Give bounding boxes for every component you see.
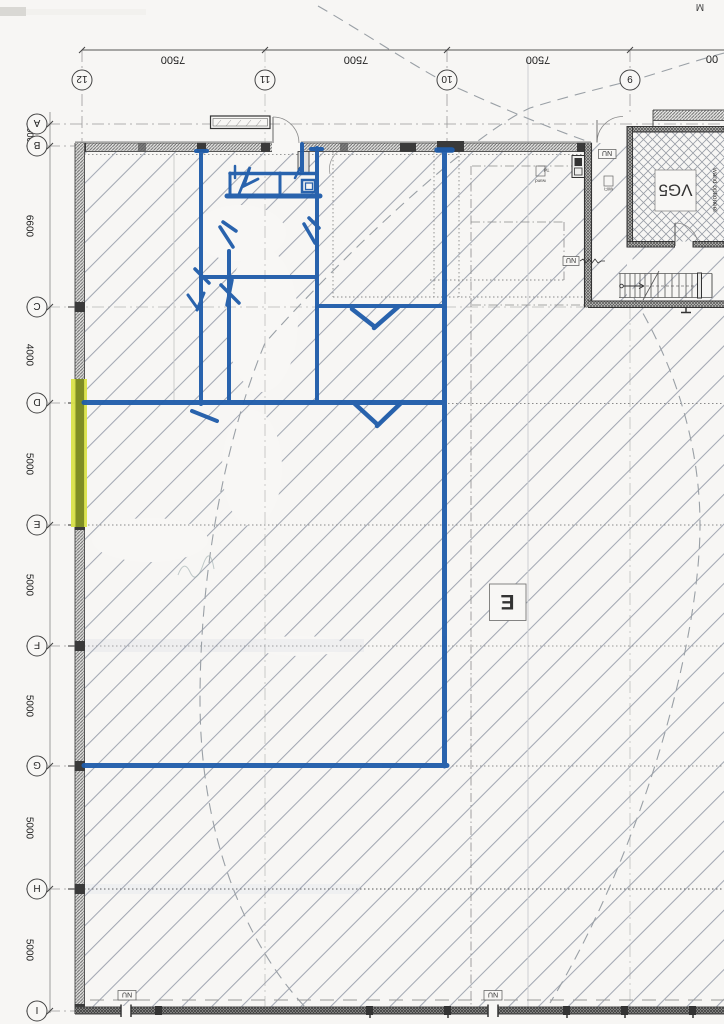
svg-text:5000: 5000 [24, 817, 35, 840]
svg-text:B: B [33, 139, 40, 150]
svg-text:wand: wand [535, 179, 546, 184]
svg-text:7500: 7500 [526, 54, 550, 66]
svg-text:VG5: VG5 [658, 181, 692, 200]
svg-text:M: M [696, 1, 704, 12]
svg-text:00: 00 [706, 53, 718, 65]
svg-text:D: D [33, 396, 40, 407]
svg-text:4000: 4000 [24, 344, 35, 367]
svg-text:H: H [33, 882, 40, 893]
svg-text:A: A [33, 117, 40, 128]
svg-text:5000: 5000 [24, 695, 35, 718]
svg-text:WiFi: WiFi [604, 187, 613, 192]
svg-text:NU: NU [122, 991, 132, 998]
svg-text:Tel: Tel [544, 168, 550, 173]
svg-text:G: G [33, 759, 41, 770]
svg-text:5000: 5000 [24, 574, 35, 597]
svg-text:E: E [33, 518, 40, 529]
svg-text:C: C [33, 300, 40, 311]
svg-text:NU: NU [602, 149, 612, 156]
svg-text:10: 10 [441, 73, 453, 84]
svg-text:11: 11 [259, 73, 270, 84]
svg-text:I: I [36, 1004, 39, 1015]
svg-text:NU: NU [488, 991, 498, 998]
svg-text:7500: 7500 [161, 54, 185, 66]
svg-text:7500: 7500 [344, 54, 368, 66]
svg-text:F: F [34, 639, 40, 650]
svg-text:5000: 5000 [24, 453, 35, 476]
svg-text:NU: NU [566, 256, 576, 263]
svg-text:6600: 6600 [24, 215, 35, 238]
svg-text:E: E [500, 590, 514, 613]
svg-text:wand optioneel: wand optioneel [711, 167, 718, 212]
svg-text:5000: 5000 [24, 939, 35, 962]
svg-text:12: 12 [76, 73, 88, 84]
svg-text:9: 9 [627, 73, 633, 84]
